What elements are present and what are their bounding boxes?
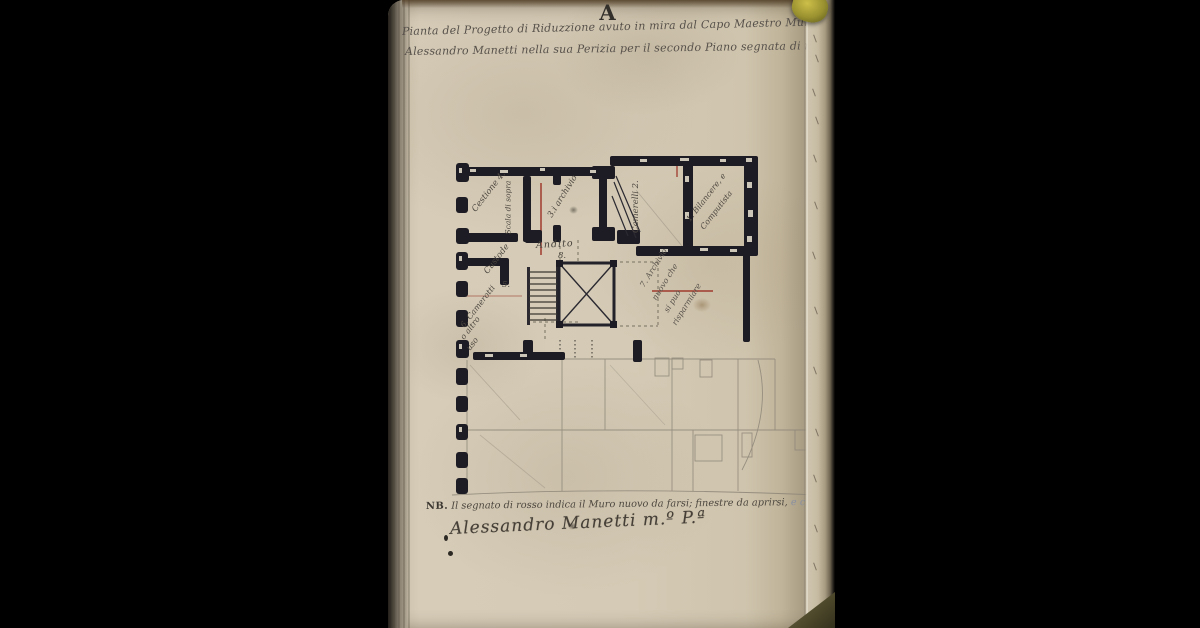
edge-writing-mark (813, 35, 817, 43)
edge-writing-mark (813, 475, 817, 483)
stain (569, 206, 578, 214)
edge-writing-mark (815, 117, 819, 125)
photo: A Pianta del Progetto di Riduzzione avut… (388, 0, 835, 628)
edge-writing-mark (813, 563, 817, 571)
screenshot: A Pianta del Progetto di Riduzzione avut… (0, 0, 1200, 628)
stain (568, 522, 576, 530)
plan-label-andito: Andito (536, 238, 574, 251)
ink-dot (448, 551, 453, 556)
plan-label-room2: Camerelli 2. (631, 180, 641, 233)
edge-writing-mark (812, 89, 816, 97)
plan-label-corridor: Scala di sopra (504, 181, 513, 235)
edge-writing-mark (812, 252, 816, 260)
edge-writing-mark (814, 202, 818, 210)
edge-writing-mark (814, 307, 818, 315)
ink-dot (444, 535, 448, 541)
stain (693, 298, 711, 312)
nb-prefix: NB. (426, 501, 448, 512)
edge-writing-mark (815, 55, 819, 63)
plan-label-room5-number: 5. (502, 280, 510, 290)
page-edge-highlight (806, 0, 808, 628)
edge-writing-mark (813, 155, 817, 163)
next-page-edge (804, 0, 835, 628)
courtyard-square (556, 260, 617, 328)
edge-writing-mark (815, 429, 819, 437)
plan-label-andito-number: 8. (558, 251, 566, 261)
staircase (527, 267, 559, 325)
edge-writing-mark (814, 525, 818, 533)
edge-writing-mark (813, 367, 817, 375)
